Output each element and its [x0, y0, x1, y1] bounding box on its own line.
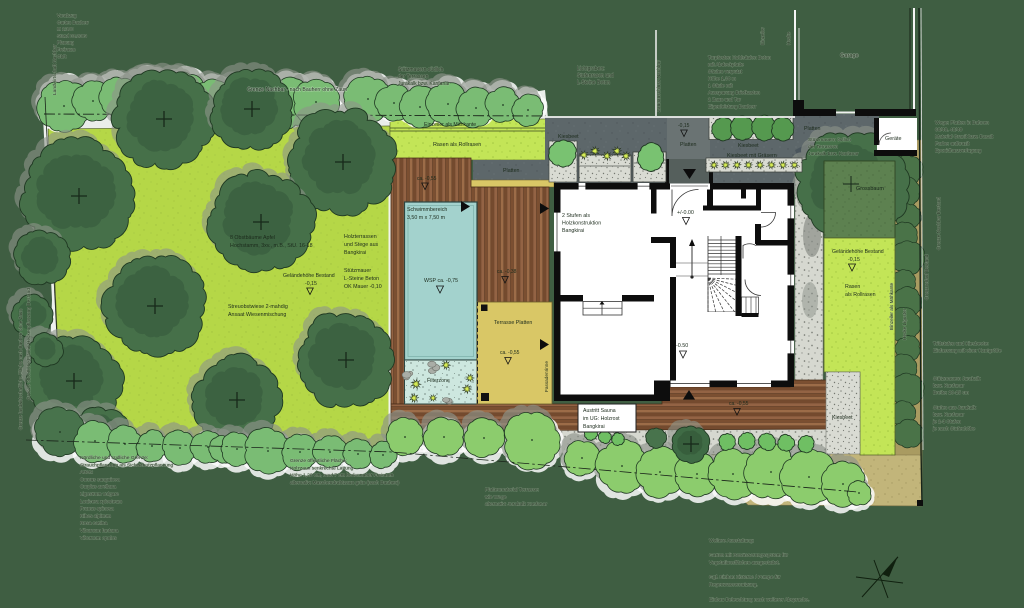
svg-text:Grenze Nachbar - nach Bauherr: Grenze Nachbar - nach Bauherr ohne Zaun: [247, 87, 347, 93]
svg-text:Prunus spinosa: Prunus spinosa: [80, 506, 114, 512]
svg-text:wie Wege: wie Wege: [485, 494, 507, 500]
svg-text:mit Abdeckplatte: mit Abdeckplatte: [708, 62, 744, 68]
svg-text:Hecke: Hecke: [786, 32, 791, 45]
svg-text:Grossbaum: Grossbaum: [856, 186, 884, 192]
svg-text:Holzterrassen: Holzterrassen: [344, 234, 377, 240]
svg-text:Freiraum: Freiraum: [57, 47, 76, 52]
svg-text:Landwirtschaft Nachbar: Landwirtschaft Nachbar: [52, 44, 58, 95]
svg-text:der Terrassen: der Terrassen: [398, 74, 429, 80]
svg-text:WSP ca. -0,75: WSP ca. -0,75: [424, 278, 458, 284]
svg-text:ca. -0,55: ca. -0,55: [500, 350, 520, 356]
svg-text:OK Mauer -0,10: OK Mauer -0,10: [344, 284, 382, 290]
svg-text:Strauchpflanzung als Sichtschu: Strauchpflanzung als Sichtschutzpflanzun…: [80, 462, 174, 468]
svg-text:Kiesbeet mit Gräsern: Kiesbeet mit Gräsern: [727, 153, 777, 159]
svg-text:Planung: Planung: [57, 40, 74, 45]
svg-text:Corylus avellana: Corylus avellana: [80, 484, 116, 490]
svg-text:Ansaat Wiesenmischung: Ansaat Wiesenmischung: [228, 312, 286, 318]
svg-text:-0,15: -0,15: [305, 281, 317, 287]
svg-text:und Stege aus: und Stege aus: [344, 242, 379, 248]
svg-text:Platten: Platten: [503, 168, 520, 174]
svg-text:Einzeiler als Mähkante: Einzeiler als Mähkante: [889, 282, 894, 330]
svg-text:Nördliche und südliche Grenze:: Nördliche und südliche Grenze:: [80, 455, 148, 461]
svg-text:Vegetationsflächen ausgestatte: Vegetationsflächen ausgestattet.: [709, 560, 780, 566]
svg-text:Grenzverlauf Bestand: Grenzverlauf Bestand: [924, 254, 929, 300]
svg-text:Holzzaun senkrechte Lattung: Holzzaun senkrechte Lattung: [290, 465, 354, 471]
svg-text:Geländehöhe Bestand: Geländehöhe Bestand: [832, 249, 884, 255]
svg-text:Grenze landwirtschaftliche Flä: Grenze landwirtschaftliche Fläche nach B…: [18, 309, 23, 430]
svg-text:Einbau Beleuchtung nach weiter: Einbau Beleuchtung nach weiterer Absprac…: [709, 597, 809, 603]
svg-text:Kiesbeet: Kiesbeet: [558, 134, 579, 140]
svg-text:Breite: 20-25 cm: Breite: 20-25 cm: [933, 390, 969, 396]
svg-text:8 Obstbäume Apfel: 8 Obstbäume Apfel: [230, 235, 275, 241]
svg-text:Schwimmbereich: Schwimmbereich: [407, 207, 447, 213]
svg-text:Lichtgraben:: Lichtgraben:: [577, 66, 605, 72]
svg-text:ca. -0,55: ca. -0,55: [417, 176, 437, 182]
svg-text:Wege: Platten in Bahnen: Wege: Platten in Bahnen: [935, 120, 989, 126]
svg-text:Garten mit Bewässerungssystem: Garten mit Bewässerungssystem für: [709, 553, 788, 559]
svg-text:L-Steine Beton: L-Steine Beton: [577, 80, 610, 86]
svg-text:Terrasse Platten: Terrasse Platten: [494, 320, 532, 326]
svg-text:Ribes alpinum: Ribes alpinum: [80, 513, 111, 519]
svg-text:GbR: GbR: [57, 54, 67, 59]
svg-text:Grenze Nachbar Bestand: Grenze Nachbar Bestand: [936, 197, 941, 250]
svg-text:Jurakalk bzw. Kanfanar: Jurakalk bzw. Kanfanar: [398, 81, 450, 87]
svg-text:Höhe 1,30 m: Höhe 1,30 m: [708, 76, 736, 82]
svg-text:Platten: Platten: [804, 126, 821, 132]
svg-text:Aussparung Briefkasten: Aussparung Briefkasten: [708, 90, 760, 96]
svg-text:Rasen als Rollrasen: Rasen als Rollrasen: [433, 142, 481, 148]
svg-text:Hecke Liguster: Hecke Liguster: [902, 308, 907, 340]
svg-text:Stufen aus Jurakalk: Stufen aus Jurakalk: [933, 405, 977, 411]
svg-text:Kiesbeet: Kiesbeet: [738, 143, 759, 149]
svg-text:Hochstamm, 3xv., m.B., StU. 16: Hochstamm, 3xv., m.B., StU. 16-18: [230, 243, 313, 249]
svg-text:Weitere Ausstattung:: Weitere Ausstattung:: [709, 538, 754, 544]
svg-text:bzw. Kanfanar: bzw. Kanfanar: [933, 383, 964, 389]
svg-text:als Rollrasen: als Rollrasen: [845, 292, 876, 298]
svg-text:+/-0.00: +/-0.00: [677, 210, 694, 216]
svg-text:2 Zaun und Tor: 2 Zaun und Tor: [708, 97, 741, 103]
svg-text:Holzkonstruktion: Holzkonstruktion: [562, 220, 601, 226]
svg-text:Grenze öffentliche Fläche:: Grenze öffentliche Fläche:: [290, 458, 347, 464]
svg-text:1 Säule mit: 1 Säule mit: [708, 83, 733, 89]
svg-text:Regenwassernutzung.: Regenwassernutzung.: [709, 582, 758, 588]
svg-text:Cornus sanguinea: Cornus sanguinea: [80, 477, 120, 483]
svg-text:Viburnum opulus: Viburnum opulus: [80, 535, 117, 541]
svg-text:Rasen: Rasen: [845, 284, 860, 290]
svg-text:Kiesbeet: Kiesbeet: [832, 415, 853, 421]
svg-text:bzw. Kanfanar: bzw. Kanfanar: [933, 412, 964, 418]
svg-text:Lonicera xylosteum: Lonicera xylosteum: [80, 499, 122, 505]
svg-text:Filterzone: Filterzone: [427, 378, 450, 384]
svg-text:Geräte: Geräte: [885, 136, 901, 142]
svg-text:Viburnum lantana: Viburnum lantana: [80, 528, 119, 534]
svg-text:M 1:100: M 1:100: [57, 27, 74, 32]
svg-text:Geländehöhe Bestand: Geländehöhe Bestand: [283, 273, 335, 279]
svg-text:je 2-3 Stufen: je 2-3 Stufen: [932, 419, 961, 425]
svg-text:Einzeiler als Mähkante: Einzeiler als Mähkante: [424, 122, 476, 128]
svg-text:Vorabzug: Vorabzug: [57, 13, 77, 18]
svg-text:Säulen verputzt: Säulen verputzt: [708, 69, 743, 75]
svg-text:Torpfosten Hohlsäulen Beton: Torpfosten Hohlsäulen Beton: [708, 55, 771, 61]
svg-text:Stützmauern südlich: Stützmauern südlich: [398, 67, 444, 73]
svg-text:Einfassung mit einer Kantgröße: Einfassung mit einer Kantgröße: [933, 348, 1002, 354]
svg-text:Grenze öffentliche Fläche Heck: Grenze öffentliche Fläche Heckenpflanzun…: [26, 288, 32, 400]
svg-text:Bangkirai: Bangkirai: [583, 424, 605, 430]
svg-text:Garage: Garage: [840, 53, 859, 59]
svg-text:ca. -0,38: ca. -0,38: [497, 269, 517, 275]
svg-text:-0.50: -0.50: [676, 343, 688, 349]
svg-text:Ligustrum vulgare: Ligustrum vulgare: [80, 492, 119, 498]
svg-text:60/40, 40/40: 60/40, 40/40: [935, 127, 962, 133]
svg-text:2 Stufen als: 2 Stufen als: [562, 213, 590, 219]
svg-text:Ggf. Einbau Zisterne / Pumpe f: Ggf. Einbau Zisterne / Pumpe für: [709, 575, 781, 581]
svg-text:Plattenmaterial Terrasse:: Plattenmaterial Terrasse:: [485, 487, 539, 493]
svg-text:je nach Stufenhöhe: je nach Stufenhöhe: [932, 426, 975, 432]
svg-text:Streuobstwiese 2-mahdig: Streuobstwiese 2-mahdig: [228, 304, 288, 310]
svg-text:Epoxidharzverfugung: Epoxidharzverfugung: [935, 148, 981, 154]
svg-text:im UG: Holzrost: im UG: Holzrost: [583, 416, 620, 422]
svg-text:der Terrassen: der Terrassen: [808, 144, 838, 150]
svg-text:Jurakalk bzw. Kanfanar: Jurakalk bzw. Kanfanar: [808, 151, 859, 157]
svg-text:Fassadenrinne: Fassadenrinne: [544, 361, 549, 392]
svg-text:Stand 03.2009: Stand 03.2009: [57, 33, 87, 38]
svg-text:Rosa canina: Rosa canina: [80, 521, 107, 527]
svg-text:alternativ: Jurakalk Kanfanar: alternativ: Jurakalk Kanfanar: [485, 502, 547, 508]
svg-text:Trittstufen und Kiesbeete:: Trittstufen und Kiesbeete:: [933, 341, 989, 347]
svg-text:Stufenrasen und: Stufenrasen und: [577, 73, 614, 79]
svg-text:Eigenleistung Bauherr: Eigenleistung Bauherr: [708, 104, 756, 110]
svg-text:Platten: Platten: [680, 142, 697, 148]
svg-text:Zaunanschluss Nachbar: Zaunanschluss Nachbar: [656, 60, 662, 112]
svg-text:-0,15: -0,15: [678, 123, 690, 129]
svg-text:L-Steine Beton: L-Steine Beton: [344, 276, 379, 282]
svg-text:3,50 m x 7,50 m: 3,50 m x 7,50 m: [407, 215, 446, 221]
svg-text:Einzeiler: Einzeiler: [760, 27, 765, 45]
svg-text:Höhe 1,20 cm, rund 7 cm bodenn: Höhe 1,20 cm, rund 7 cm bodennaher Freir…: [290, 473, 393, 479]
svg-text:Stützmauern Jurakalk: Stützmauern Jurakalk: [933, 376, 981, 382]
svg-text:Stützmauer: Stützmauer: [344, 268, 371, 274]
svg-text:ca. -0,55: ca. -0,55: [729, 401, 749, 407]
svg-text:-0,15: -0,15: [848, 257, 860, 263]
svg-text:Farbe: anthrazit: Farbe: anthrazit: [935, 141, 970, 147]
svg-text:Stützmauern östlich: Stützmauern östlich: [808, 137, 851, 143]
svg-text:Austritt Sauna: Austritt Sauna: [583, 408, 616, 414]
svg-text:Arten:: Arten:: [80, 470, 93, 476]
svg-text:Material Granit bzw. Basalt: Material Granit bzw. Basalt: [935, 134, 994, 140]
svg-text:alternativ: Maschendrahtzaun g: alternativ: Maschendrahtzaun grün (nach …: [290, 480, 400, 486]
svg-text:Bangkirai: Bangkirai: [562, 228, 584, 234]
svg-text:Bangkirai: Bangkirai: [344, 250, 366, 256]
svg-text:Garten Bauherr: Garten Bauherr: [57, 20, 89, 25]
